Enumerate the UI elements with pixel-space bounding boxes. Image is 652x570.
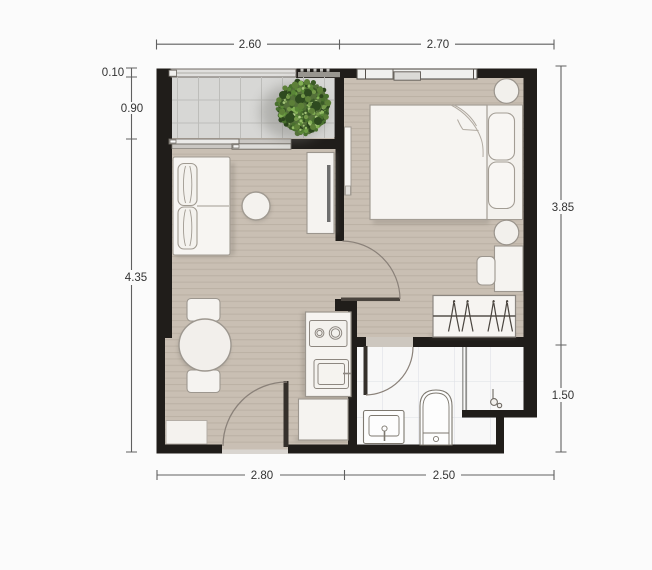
svg-text:2.70: 2.70 bbox=[427, 39, 449, 51]
svg-text:0.90: 0.90 bbox=[121, 103, 143, 115]
svg-text:2.60: 2.60 bbox=[239, 39, 261, 51]
svg-text:2.80: 2.80 bbox=[251, 470, 273, 482]
svg-text:0.10: 0.10 bbox=[102, 67, 124, 79]
svg-text:4.35: 4.35 bbox=[125, 272, 147, 284]
svg-text:1.50: 1.50 bbox=[552, 390, 574, 402]
svg-text:2.50: 2.50 bbox=[433, 470, 455, 482]
svg-text:3.85: 3.85 bbox=[552, 202, 574, 214]
